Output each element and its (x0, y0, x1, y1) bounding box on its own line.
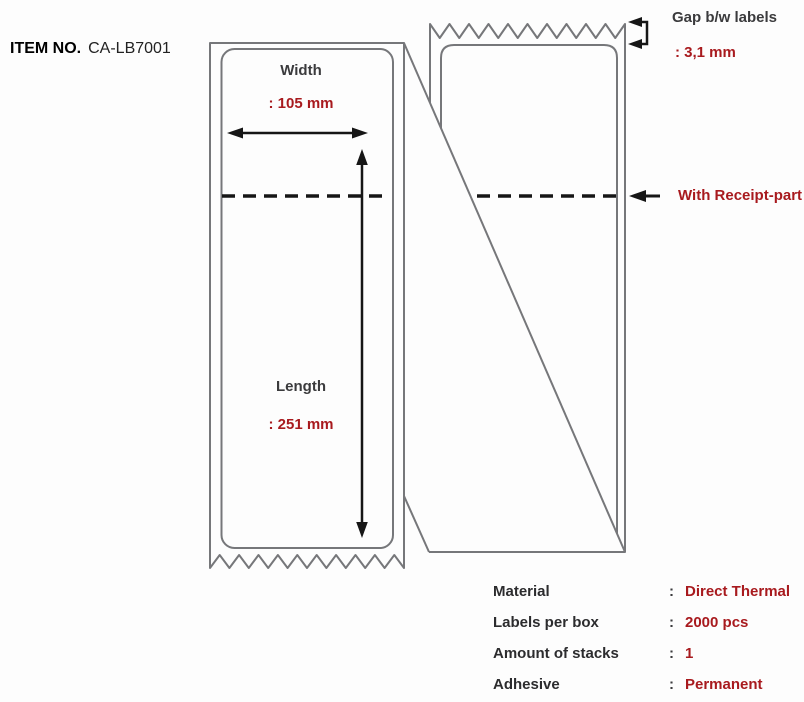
spec-label: Labels per box (493, 614, 669, 631)
spec-separator: : (669, 645, 685, 662)
item-number: ITEM NO.CA-LB7001 (10, 40, 171, 58)
receipt-arrow (629, 190, 660, 202)
gap-value: : 3,1 mm (675, 44, 736, 61)
width-value: : 105 mm (215, 95, 387, 112)
fold-line-lower (404, 496, 429, 552)
spec-value: Direct Thermal (685, 583, 790, 600)
spec-value: 1 (685, 645, 790, 662)
spec-label: Adhesive (493, 676, 669, 693)
spec-row-labels-per-box: Labels per box : 2000 pcs (493, 614, 790, 645)
spec-row-material: Material : Direct Thermal (493, 583, 790, 614)
spec-value: Permanent (685, 676, 790, 693)
length-value: : 251 mm (215, 416, 387, 433)
left-strip-liner-outline (210, 43, 404, 568)
right-strip-liner-outline (429, 24, 625, 552)
spec-separator: : (669, 583, 685, 600)
receipt-part-label: With Receipt-part (678, 187, 802, 204)
spec-row-adhesive: Adhesive : Permanent (493, 676, 790, 702)
label-spec-sheet: ITEM NO.CA-LB7001 Width : 105 mm Length … (0, 0, 804, 702)
spec-separator: : (669, 676, 685, 693)
width-label: Width (215, 62, 387, 79)
length-label: Length (215, 378, 387, 395)
right-strip-label-outline (441, 45, 617, 534)
right-strip (404, 24, 625, 552)
spec-table: Material : Direct Thermal Labels per box… (493, 583, 790, 702)
spec-row-amount-of-stacks: Amount of stacks : 1 (493, 645, 790, 676)
gap-label: Gap b/w labels (672, 9, 777, 26)
spec-label: Material (493, 583, 669, 600)
spec-separator: : (669, 614, 685, 631)
item-number-label: ITEM NO. (10, 40, 81, 57)
item-number-value: CA-LB7001 (88, 40, 171, 57)
left-strip (210, 43, 404, 568)
gap-bracket-arrows (628, 17, 647, 49)
spec-label: Amount of stacks (493, 645, 669, 662)
spec-value: 2000 pcs (685, 614, 790, 631)
fold-line-upper (404, 43, 625, 552)
